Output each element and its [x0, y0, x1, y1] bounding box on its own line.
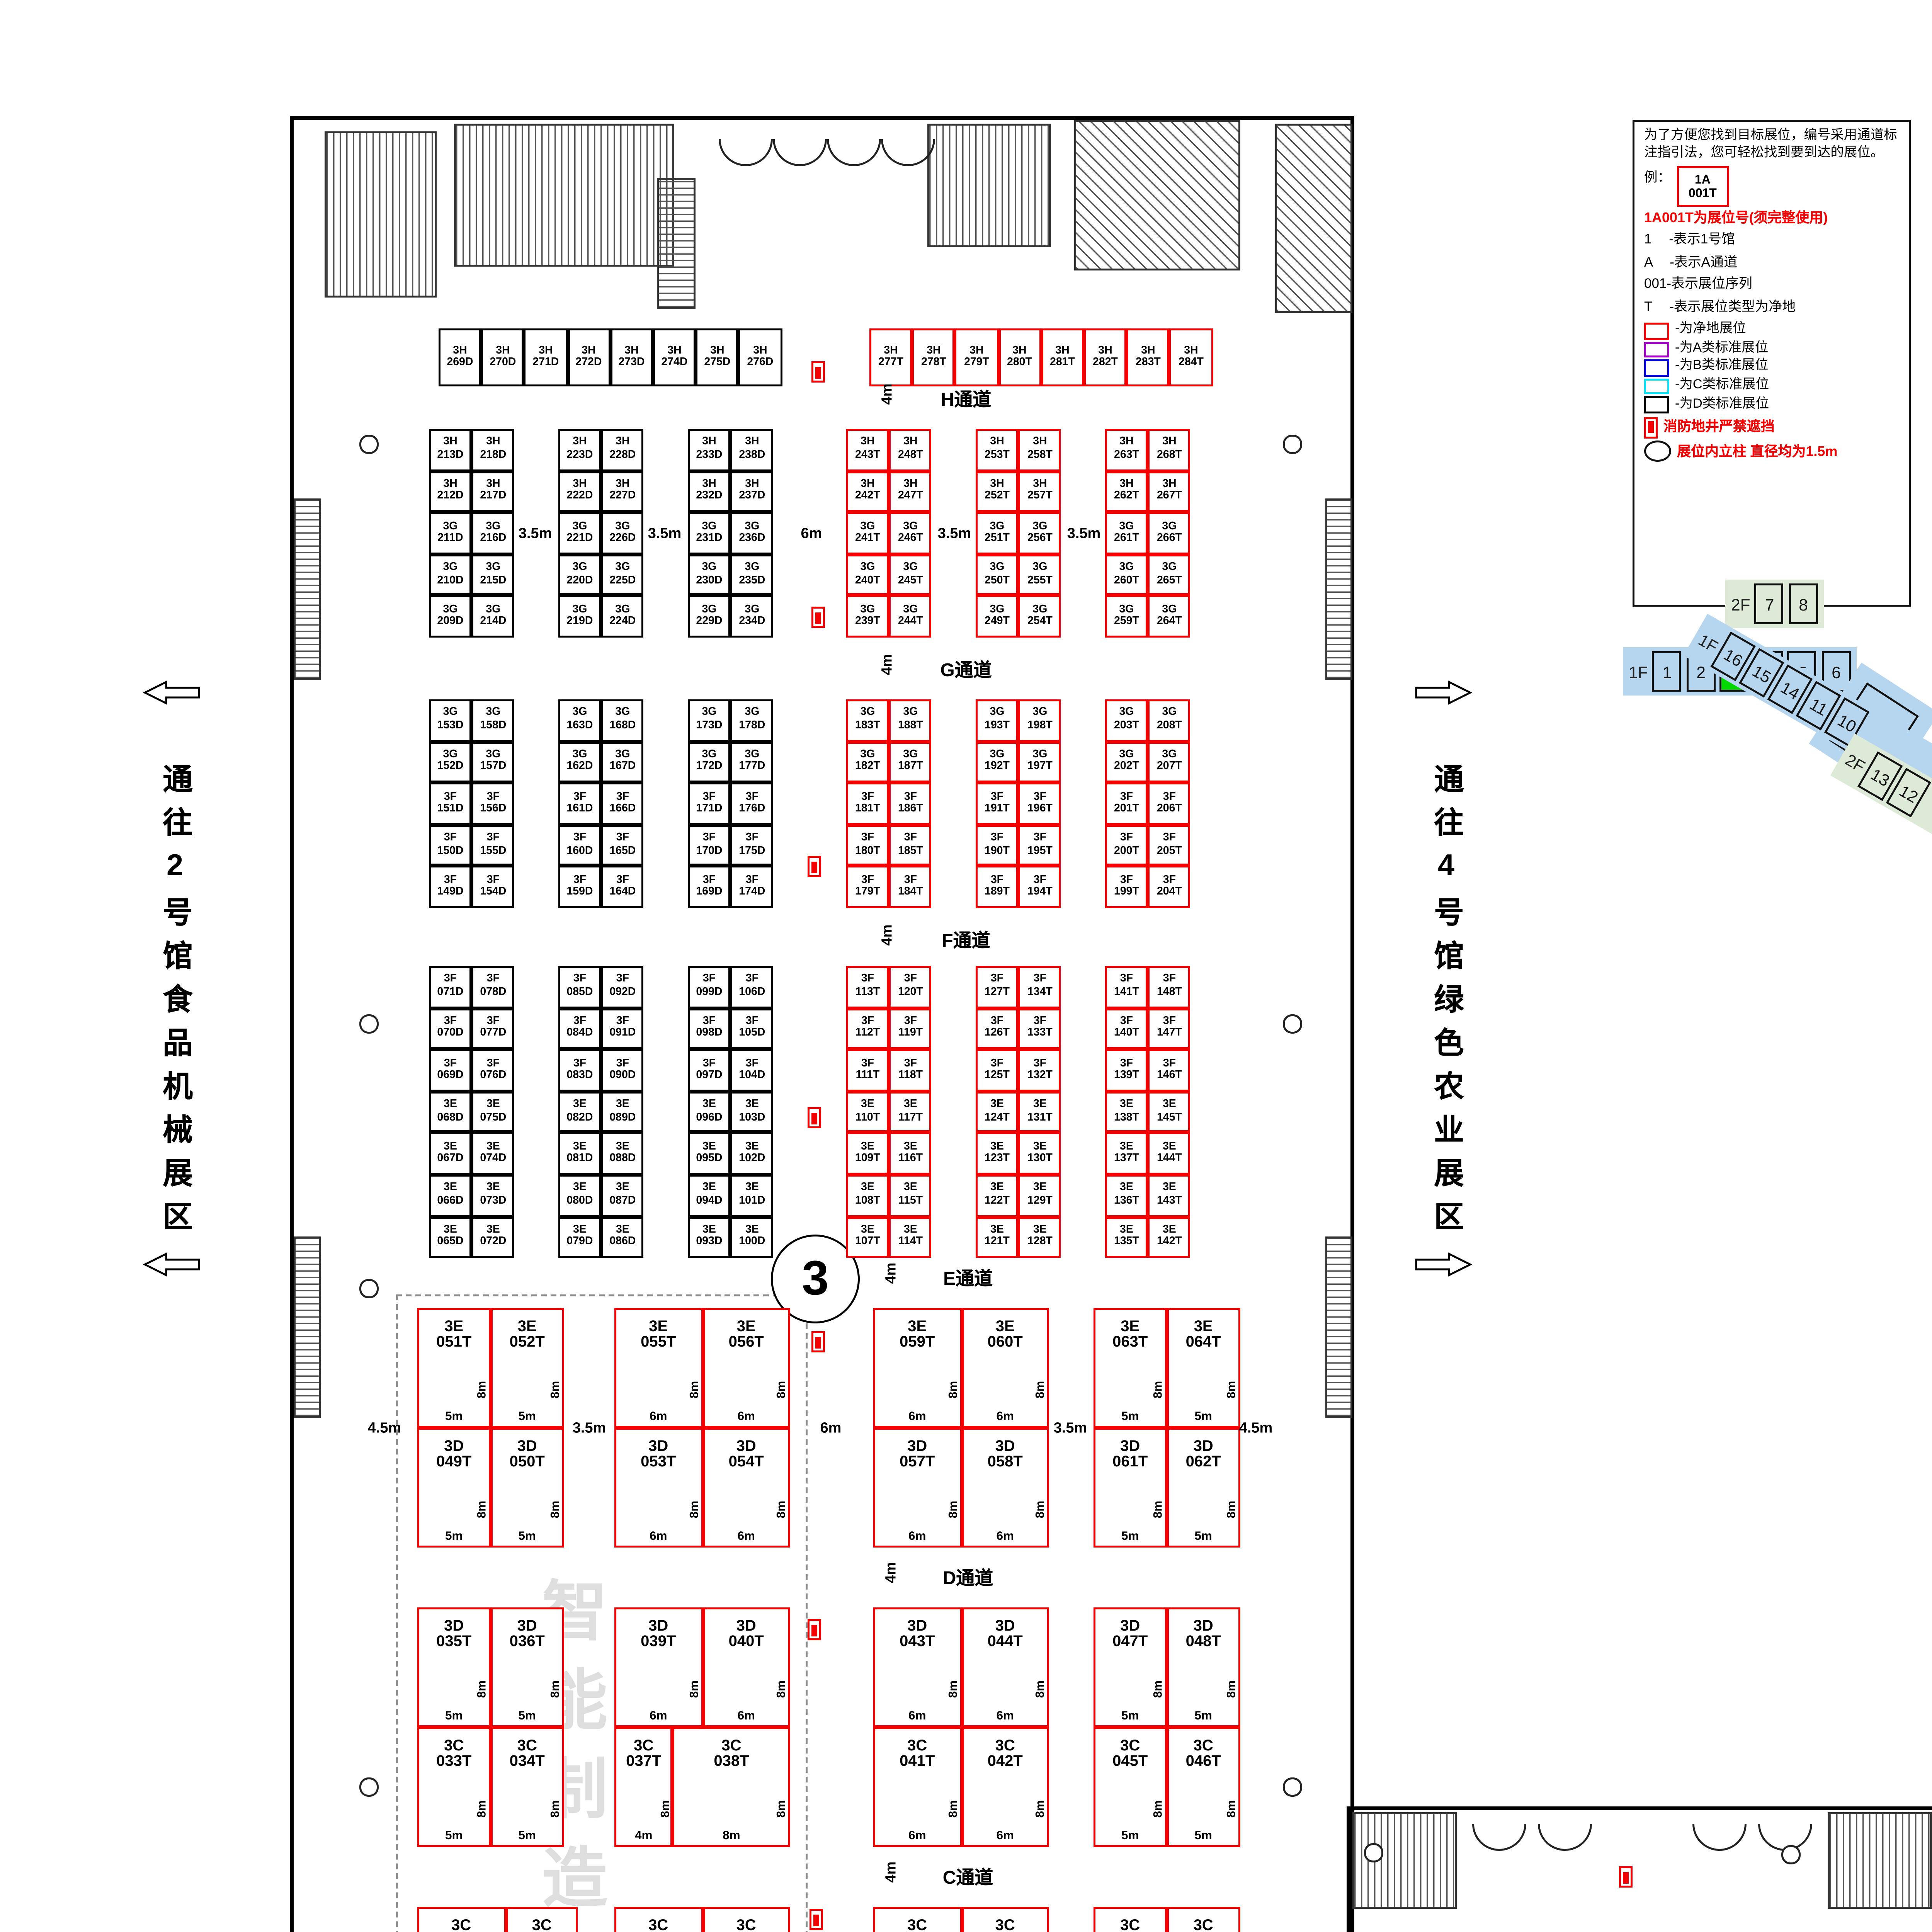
- booth-cell: 3G153D: [429, 699, 472, 741]
- booth-cell: 3F200T: [1105, 825, 1148, 866]
- booth-cell: 3F156D: [472, 783, 515, 825]
- booth-cell: 3H238D: [731, 429, 774, 471]
- booth-cell: 3E055T6m8m: [614, 1308, 702, 1428]
- booth-cell: 3G203T: [1105, 699, 1148, 741]
- booth-cell: 3D035T5m8m: [417, 1607, 490, 1727]
- booth-cell: 3G183T: [846, 699, 889, 741]
- booth-cell: 3F141T: [1105, 966, 1148, 1008]
- booth-cell: 3E101D: [731, 1175, 774, 1216]
- booth-cell: 3H272D: [567, 328, 610, 386]
- booth-cell: 3F076D: [472, 1049, 515, 1091]
- booth-cell: 3G207T: [1148, 741, 1191, 783]
- dimension-label: 3.5m: [1054, 1419, 1087, 1437]
- booth-cell: 3F091D: [601, 1008, 644, 1049]
- booth-cell: 3E072D: [472, 1216, 515, 1258]
- booth-cell: 3G172D: [688, 741, 731, 783]
- booth-cell: 3F201T: [1105, 783, 1148, 825]
- booth-cell: 3C045T5m8m: [1094, 1727, 1167, 1847]
- booth-cell: 3F120T: [889, 966, 932, 1008]
- legend-example-booth: 1A 001T: [1677, 167, 1729, 207]
- booth-cell: 3G209D: [429, 596, 472, 638]
- booth-cell: 3C033T5m8m: [417, 1727, 490, 1847]
- booth-cell: 3F085D: [558, 966, 601, 1008]
- aisle-label: D通道: [943, 1563, 993, 1590]
- booth-cell: 3F112T: [846, 1008, 889, 1049]
- fire-well-icon: [811, 1331, 825, 1352]
- booth-cell: 3H218D: [472, 429, 515, 471]
- dimension-label: 3.5m: [573, 1419, 606, 1437]
- service-room-icon: [1074, 120, 1240, 270]
- booth-cell: 3F092D: [601, 966, 644, 1008]
- booth-cell: 3E135T: [1105, 1216, 1148, 1258]
- booth-cell: 3G182T: [846, 741, 889, 783]
- booth-cell: 3E052T5m8m: [490, 1308, 563, 1428]
- minimap-hall-8: 8: [1789, 583, 1818, 624]
- dimension-label: 3.5m: [648, 525, 682, 542]
- booth-cell: 3H242T: [846, 471, 889, 512]
- booth-cell: 3F176D: [731, 783, 774, 825]
- dimension-label: 3.5m: [938, 525, 971, 542]
- booth-cell: 3D057T6m8m: [873, 1428, 961, 1548]
- fire-well-icon: [808, 1619, 821, 1640]
- booth-cell: 3G241T: [846, 512, 889, 554]
- arrow-right-icon: [1414, 1252, 1472, 1277]
- booth-cell: 3H233D: [688, 429, 731, 471]
- booth-cell: 3D050T5m8m: [490, 1428, 563, 1548]
- booth-cell: 3F186T: [889, 783, 932, 825]
- booth-cell: 3G188T: [889, 699, 932, 741]
- booth-cell: 3E143T: [1148, 1175, 1191, 1216]
- booth-cell: 3G251T: [976, 512, 1019, 554]
- legend-code-lines: 1 -表示1号馆A -表示A通道001-表示展位序列T -表示展位类型为净地: [1644, 232, 1899, 319]
- dimension-label: 3.5m: [519, 525, 552, 542]
- booth-cell: 3E096D: [688, 1091, 731, 1133]
- booth-cell: 3G208T: [1148, 699, 1191, 741]
- dimension-label: 6m: [820, 1419, 842, 1437]
- booth-cell: 3F205T: [1148, 825, 1191, 866]
- booth-cell: 3G192T: [976, 741, 1019, 783]
- booth-cell: 3F194T: [1019, 866, 1061, 908]
- booth-cell: 3F180T: [846, 825, 889, 866]
- booth-cell: 3E115T: [889, 1175, 932, 1216]
- booth-cell: 3H212D: [429, 471, 472, 512]
- booth-cell: 3G256T: [1019, 512, 1061, 554]
- booth-cell: 3H262T: [1105, 471, 1148, 512]
- booth-cell: 3H263T: [1105, 429, 1148, 471]
- booth-cell: 3G216D: [472, 512, 515, 554]
- booth-cell: 3F104D: [731, 1049, 774, 1091]
- legend-example-note: 1A001T为展位号(须完整使用): [1644, 209, 1899, 229]
- minimap-2f-label: 2F: [1731, 594, 1750, 614]
- booth-cell: 3F127T: [976, 966, 1019, 1008]
- booth-cell: 3F111T: [846, 1049, 889, 1091]
- booth-cell: 3G245T: [889, 554, 932, 596]
- booth-cell: 3H280T: [998, 328, 1041, 386]
- minimap-1f-label: 1F: [1629, 662, 1648, 681]
- to-hall4-label: 通往4号馆绿色农业展区: [1424, 763, 1466, 1244]
- booth-cell: 3E136T: [1105, 1175, 1148, 1216]
- booth-cell: 3H274D: [653, 328, 696, 386]
- booth-cell: 3D053T6m8m: [614, 1428, 702, 1548]
- booth-cell: 3E137T: [1105, 1133, 1148, 1175]
- booth-cell: 3E131T: [1019, 1091, 1061, 1133]
- booth-cell: 3G260T: [1105, 554, 1148, 596]
- booth-cell: 3G266T: [1148, 512, 1191, 554]
- minimap-2f-strip: 2F 78: [1725, 580, 1824, 628]
- booth-cell: 3H278T: [912, 328, 955, 386]
- booth-cell: 3F139T: [1105, 1049, 1148, 1091]
- booth-cell: 3F070D: [429, 1008, 472, 1049]
- booth-cell: 3G235D: [731, 554, 774, 596]
- booth-cell: 3E142T: [1148, 1216, 1191, 1258]
- booth-cell: 3E109T: [846, 1133, 889, 1175]
- booth-cell: 3E063T5m8m: [1094, 1308, 1167, 1428]
- booth-cell: 3G197T: [1019, 741, 1061, 783]
- booth-cell: 3E121T: [976, 1216, 1019, 1258]
- legend-panel: 为了方便您找到目标展位，编号采用通道标注指引法，您可轻松找到要到达的展位。 例：…: [1633, 120, 1911, 607]
- booth-cell: 3F119T: [889, 1008, 932, 1049]
- booth-cell: 3H268T: [1148, 429, 1191, 471]
- booth-cell: 3G173D: [688, 699, 731, 741]
- booth-cell: 3E124T: [976, 1091, 1019, 1133]
- booth-cell: 3E080D: [558, 1175, 601, 1216]
- booth-cell: 3G261T: [1105, 512, 1148, 554]
- booth-cell: 3C024T6m9m: [702, 1907, 791, 1932]
- booth-cell: 3E060T6m8m: [961, 1308, 1049, 1428]
- booth-cell: 3F165D: [601, 825, 644, 866]
- pillar-icon: [1283, 1777, 1301, 1796]
- legend-type-row: -为C类标准展位: [1644, 377, 1899, 396]
- booth-type-swatch-icon: [1644, 341, 1669, 358]
- booth-cell: 3F150D: [429, 825, 472, 866]
- pillar-icon: [1364, 1843, 1383, 1862]
- booth-cell: 3H257T: [1019, 471, 1061, 512]
- booth-cell: 3E075D: [472, 1091, 515, 1133]
- booth-cell: 3G249T: [976, 596, 1019, 638]
- fire-well-icon: [808, 856, 821, 877]
- booth-cell: 3G236D: [731, 512, 774, 554]
- booth-cell: 3F077D: [472, 1008, 515, 1049]
- booth-cell: 3H271D: [524, 328, 567, 386]
- booth-cell: 3G210D: [429, 554, 472, 596]
- booth-cell: 3G259T: [1105, 596, 1148, 638]
- booth-cell: 3D039T6m8m: [614, 1607, 702, 1727]
- booth-cell: 3G229D: [688, 596, 731, 638]
- booth-cell: 3F147T: [1148, 1008, 1191, 1049]
- dimension-label: 3.5m: [1067, 525, 1101, 542]
- legend-fire-text: 消防地井严禁遮挡: [1663, 418, 1775, 437]
- booth-cell: 3H270D: [481, 328, 524, 386]
- booth-cell: 3C042T6m8m: [961, 1727, 1049, 1847]
- booth-cell: 3D054T6m8m: [702, 1428, 791, 1548]
- booth-cell: 3G226D: [601, 512, 644, 554]
- booth-cell: 3H237D: [731, 471, 774, 512]
- booth-cell: 3G214D: [472, 596, 515, 638]
- to-hall2-label: 通往2号馆食品机械展区: [153, 763, 195, 1244]
- booth-cell: 3G162D: [558, 741, 601, 783]
- booth-cell: 3D047T5m8m: [1094, 1607, 1167, 1727]
- booth-cell: 3C031T5m9m: [1094, 1907, 1167, 1932]
- booth-cell: 3F171D: [688, 783, 731, 825]
- hall3-circle-text: 3: [802, 1251, 829, 1307]
- booth-cell: 3G231D: [688, 512, 731, 554]
- booth-cell: 3G177D: [731, 741, 774, 783]
- legend-code-line: T -表示展位类型为净地: [1644, 299, 1899, 319]
- booth-cell: 3G244T: [889, 596, 932, 638]
- legend-example-line2: 001T: [1689, 187, 1717, 201]
- booth-cell: 3E138T: [1105, 1091, 1148, 1133]
- booth-cell: 3F155D: [472, 825, 515, 866]
- washroom-icon: [927, 124, 1051, 247]
- stairs-icon: [657, 178, 696, 309]
- pillar-icon: [1283, 1014, 1301, 1033]
- booth-cell: 3F204T: [1148, 866, 1191, 908]
- booth-cell: 3H243T: [846, 429, 889, 471]
- booth-cell: 3F189T: [976, 866, 1019, 908]
- booth-cell: 3G240T: [846, 554, 889, 596]
- booth-cell: 3G225D: [601, 554, 644, 596]
- dimension-label: 4.5m: [368, 1419, 401, 1437]
- arrow-left-icon: [143, 680, 201, 705]
- booth-cell: 3E073D: [472, 1175, 515, 1216]
- booth-cell: 3G250T: [976, 554, 1019, 596]
- legend-booth-types: -为净地展位-为A类标准展位-为B类标准展位-为C类标准展位-为D类标准展位: [1644, 322, 1899, 415]
- booth-cell: 3F140T: [1105, 1008, 1148, 1049]
- pillar-icon: [1644, 441, 1671, 463]
- fire-well-icon: [811, 361, 825, 383]
- booth-cell: 3F190T: [976, 825, 1019, 866]
- dimension-label: 4.5m: [1239, 1419, 1273, 1437]
- booth-cell: 3G163D: [558, 699, 601, 741]
- pillar-icon: [359, 1777, 378, 1796]
- booth-cell: 3G246T: [889, 512, 932, 554]
- booth-cell: 3E093D: [688, 1216, 731, 1258]
- booth-cell: 3H222D: [558, 471, 601, 512]
- fire-well-icon: [808, 1107, 821, 1128]
- booth-cell: 3E100D: [731, 1216, 774, 1258]
- stairs-icon: [294, 498, 321, 680]
- booth-type-swatch-icon: [1644, 397, 1669, 413]
- booth-cell: 3F106D: [731, 966, 774, 1008]
- booth-cell: 3E066D: [429, 1175, 472, 1216]
- booth-cell: 3G234D: [731, 596, 774, 638]
- booth-cell: 3E089D: [601, 1091, 644, 1133]
- booth-cell: 3H281T: [1041, 328, 1084, 386]
- booth-cell: 3F166D: [601, 783, 644, 825]
- booth-cell: 3G221D: [558, 512, 601, 554]
- booth-cell: 3G157D: [472, 741, 515, 783]
- booth-cell: 3G224D: [601, 596, 644, 638]
- booth-cell: 3E064T5m8m: [1167, 1308, 1240, 1428]
- pillar-icon: [359, 435, 378, 453]
- booth-cell: 3H276D: [739, 328, 782, 386]
- stairs-icon: [1325, 498, 1352, 680]
- booth-cell: 3C023T6m9m: [614, 1907, 702, 1932]
- booth-cell: 3H275D: [696, 328, 739, 386]
- booth-cell: 3H283T: [1127, 328, 1170, 386]
- dimension-label: 4m: [882, 1263, 900, 1284]
- booth-cell: 3F149D: [429, 866, 472, 908]
- booth-cell: 3F146T: [1148, 1049, 1191, 1091]
- booth-cell: 3F132T: [1019, 1049, 1061, 1091]
- booth-cell: 3H217D: [472, 471, 515, 512]
- booth-cell: 3E081D: [558, 1133, 601, 1175]
- washroom-icon: [454, 124, 674, 267]
- legend-pillar-text: 展位内立柱 直径均为1.5m: [1677, 442, 1837, 462]
- booth-cell: 3C041T6m8m: [873, 1727, 961, 1847]
- dimension-label: 4m: [878, 384, 896, 405]
- booth-cell: 3E129T: [1019, 1175, 1061, 1216]
- booth-cell: 3F179T: [846, 866, 889, 908]
- booth-cell: 3G158D: [472, 699, 515, 741]
- stairs-icon: [1325, 1236, 1352, 1418]
- legend-code-line: 1 -表示1号馆: [1644, 232, 1899, 252]
- legend-pillar-note: 展位内立柱 直径均为1.5m: [1644, 441, 1899, 463]
- booth-cell: 3H213D: [429, 429, 472, 471]
- legend-example-label: 例：: [1644, 167, 1671, 186]
- booth-cell: 3F169D: [688, 866, 731, 908]
- booth-cell: 3H223D: [558, 429, 601, 471]
- booth-cell: 3G239T: [846, 596, 889, 638]
- legend-code-line: A -表示A通道: [1644, 254, 1899, 274]
- floorplan: 智能制造专区 3 3-4 通往2号馆食品机械展区 通往4号馆绿色农业展区 为了方…: [0, 0, 1932, 1932]
- booth-cell: 3H247T: [889, 471, 932, 512]
- booth-cell: 3F113T: [846, 966, 889, 1008]
- booth-cell: 3E145T: [1148, 1091, 1191, 1133]
- legend-example-line1: 1A: [1695, 173, 1711, 187]
- booth-cell: 3F078D: [472, 966, 515, 1008]
- door-arc-icon: [1538, 1797, 1592, 1851]
- booth-cell: 3C037T4m8m: [614, 1727, 673, 1847]
- booth-cell: 3E122T: [976, 1175, 1019, 1216]
- booth-cell: 3C038T8m8m: [673, 1727, 790, 1847]
- booth-cell: 3E067D: [429, 1133, 472, 1175]
- booth-cell: 3H282T: [1084, 328, 1127, 386]
- booth-cell: 3H273D: [610, 328, 653, 386]
- booth-cell: 3G187T: [889, 741, 932, 783]
- booth-cell: 3E087D: [601, 1175, 644, 1216]
- booth-cell: 3F191T: [976, 783, 1019, 825]
- booth-cell: 3E103D: [731, 1091, 774, 1133]
- booth-cell: 3E079D: [558, 1216, 601, 1258]
- booth-cell: 3C032T5m9m: [1167, 1907, 1240, 1932]
- booth-cell: 3C034T5m8m: [490, 1727, 563, 1847]
- booth-cell: 3G220D: [558, 554, 601, 596]
- legend-type-row: -为A类标准展位: [1644, 340, 1899, 359]
- booth-cell: 3C027T6m9m: [873, 1907, 961, 1932]
- booth-cell: 3E108T: [846, 1175, 889, 1216]
- booth-cell: 3G230D: [688, 554, 731, 596]
- booth-cell: 3D044T6m8m: [961, 1607, 1049, 1727]
- booth-cell: 3E056T6m8m: [702, 1308, 791, 1428]
- aisle-label: C通道: [1770, 1930, 1820, 1932]
- booth-cell: 3F199T: [1105, 866, 1148, 908]
- booth-cell: 3F071D: [429, 966, 472, 1008]
- booth-cell: 3F181T: [846, 783, 889, 825]
- legend-code-line: 001-表示展位序列: [1644, 277, 1899, 296]
- door-arc-icon: [1758, 1797, 1812, 1851]
- booth-cell: 3G167D: [601, 741, 644, 783]
- service-room-icon: [1275, 124, 1352, 313]
- booth-cell: 3H279T: [955, 328, 998, 386]
- legend-type-row: -为B类标准展位: [1644, 359, 1899, 377]
- booth-cell: 3D049T5m8m: [417, 1428, 490, 1548]
- stairs-icon: [325, 131, 437, 298]
- booth-cell: 3G264T: [1148, 596, 1191, 638]
- dimension-label: 4m: [878, 925, 896, 946]
- booth-cell: 3H227D: [601, 471, 644, 512]
- booth-cell: 3F083D: [558, 1049, 601, 1091]
- booth-cell: 3H277T: [869, 328, 912, 386]
- booth-cell: 3C019T6m9m: [417, 1907, 505, 1932]
- booth-cell: 3E068D: [429, 1091, 472, 1133]
- booth-cell: 3H228D: [601, 429, 644, 471]
- booth-cell: 3F151D: [429, 783, 472, 825]
- booth-cell: 3D036T5m8m: [490, 1607, 563, 1727]
- booth-cell: 3E130T: [1019, 1133, 1061, 1175]
- booth-cell: 3E094D: [688, 1175, 731, 1216]
- booth-cell: 3H248T: [889, 429, 932, 471]
- booth-cell: 3E082D: [558, 1091, 601, 1133]
- legend-fire-note: 消防地井严禁遮挡: [1644, 417, 1899, 439]
- booth-cell: 3E065D: [429, 1216, 472, 1258]
- booth-cell: 3G265T: [1148, 554, 1191, 596]
- booth-cell: 3F170D: [688, 825, 731, 866]
- booth-cell: 3F185T: [889, 825, 932, 866]
- pillar-icon: [359, 1279, 378, 1298]
- legend-intro: 为了方便您找到目标展位，编号采用通道标注指引法，您可轻松找到要到达的展位。: [1644, 129, 1899, 164]
- fire-well-icon: [810, 1909, 823, 1930]
- booth-cell: 3H267T: [1148, 471, 1191, 512]
- booth-cell: 3E116T: [889, 1133, 932, 1175]
- booth-cell: 3H252T: [976, 471, 1019, 512]
- booth-cell: 3H232D: [688, 471, 731, 512]
- booth-cell: 3F148T: [1148, 966, 1191, 1008]
- booth-cell: 3F105D: [731, 1008, 774, 1049]
- booth-cell: 3D043T6m8m: [873, 1607, 961, 1727]
- legend-type-row: -为D类标准展位: [1644, 396, 1899, 414]
- booth-cell: 3D062T5m8m: [1167, 1428, 1240, 1548]
- aisle-label: H通道: [941, 384, 992, 412]
- booth-cell: 3E123T: [976, 1133, 1019, 1175]
- booth-cell: 3F133T: [1019, 1008, 1061, 1049]
- fire-well-icon: [1619, 1866, 1633, 1888]
- aisle-label: C通道: [943, 1862, 993, 1889]
- booth-cell: 3H253T: [976, 429, 1019, 471]
- booth-cell: 3F090D: [601, 1049, 644, 1091]
- booth-cell: 3F206T: [1148, 783, 1191, 825]
- booth-cell: 3E086D: [601, 1216, 644, 1258]
- booth-cell: 3E102D: [731, 1133, 774, 1175]
- booth-cell: 3D058T6m8m: [961, 1428, 1049, 1548]
- pillar-icon: [359, 1014, 378, 1033]
- booth-cell: 3G168D: [601, 699, 644, 741]
- booth-cell: 3G152D: [429, 741, 472, 783]
- booth-cell: 3H258T: [1019, 429, 1061, 471]
- booth-cell: 3G254T: [1019, 596, 1061, 638]
- booth-cell: 3G255T: [1019, 554, 1061, 596]
- booth-cell: 3E110T: [846, 1091, 889, 1133]
- booth-cell: 3F196T: [1019, 783, 1061, 825]
- booth-cell: 3E051T5m8m: [417, 1308, 490, 1428]
- arrow-right-icon: [1414, 680, 1472, 705]
- booth-cell: 3F099D: [688, 966, 731, 1008]
- booth-cell: 3F069D: [429, 1049, 472, 1091]
- booth-type-swatch-icon: [1644, 360, 1669, 376]
- booth-cell: 3F175D: [731, 825, 774, 866]
- booth-cell: 3F154D: [472, 866, 515, 908]
- booth-cell: 3G202T: [1105, 741, 1148, 783]
